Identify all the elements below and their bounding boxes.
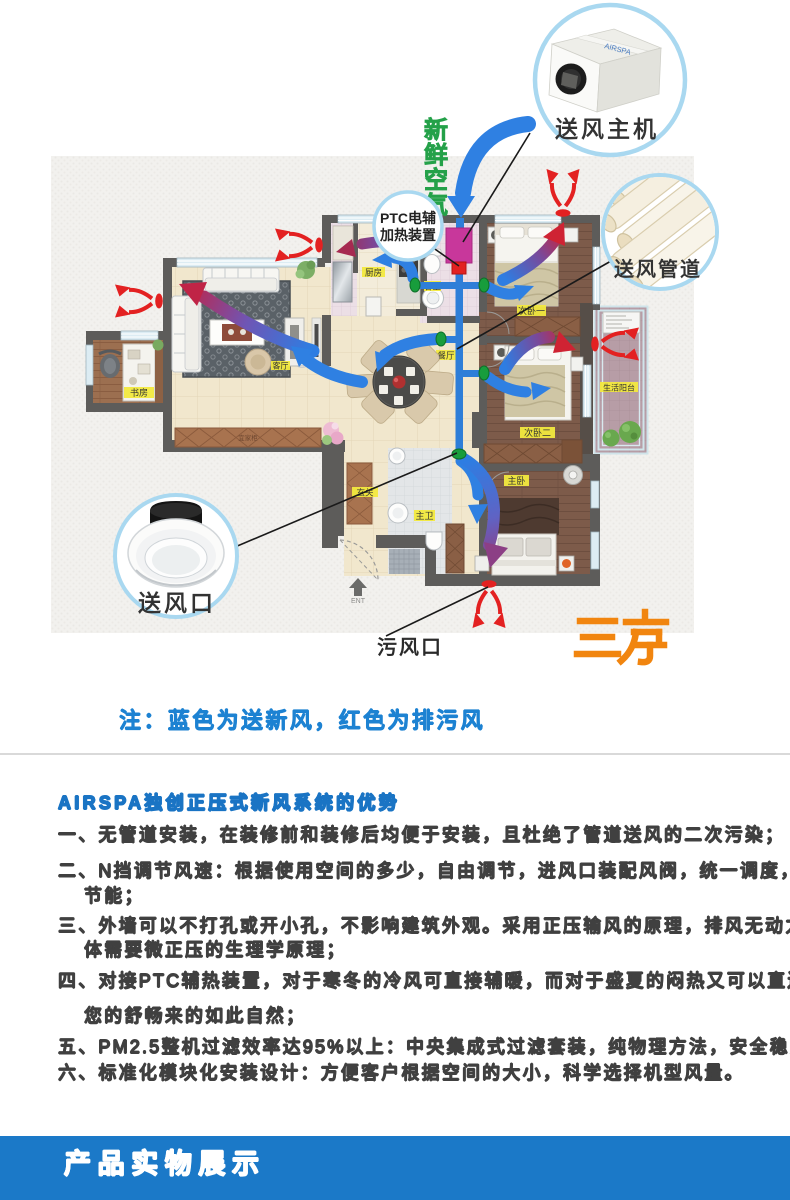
svg-text:餐厅: 餐厅 <box>437 351 455 361</box>
svg-text:加热装置: 加热装置 <box>379 227 436 243</box>
svg-text:宜家柜: 宜家柜 <box>238 433 258 442</box>
svg-text:送风管道: 送风管道 <box>614 258 702 281</box>
svg-text:送风口: 送风口 <box>138 590 216 616</box>
svg-text:污风口: 污风口 <box>377 636 443 659</box>
svg-text:书房: 书房 <box>130 387 148 398</box>
svg-text:PTC电辅: PTC电辅 <box>380 210 436 226</box>
svg-text:主卫: 主卫 <box>415 510 433 521</box>
svg-text:生活阳台: 生活阳台 <box>603 383 635 393</box>
svg-text:ENT: ENT <box>351 598 366 605</box>
svg-text:次卧二: 次卧二 <box>524 427 551 438</box>
svg-text:客厅: 客厅 <box>273 361 289 371</box>
svg-text:厨房: 厨房 <box>365 268 382 278</box>
svg-text:主卧: 主卧 <box>507 475 525 486</box>
svg-text:送风主机: 送风主机 <box>555 116 659 142</box>
